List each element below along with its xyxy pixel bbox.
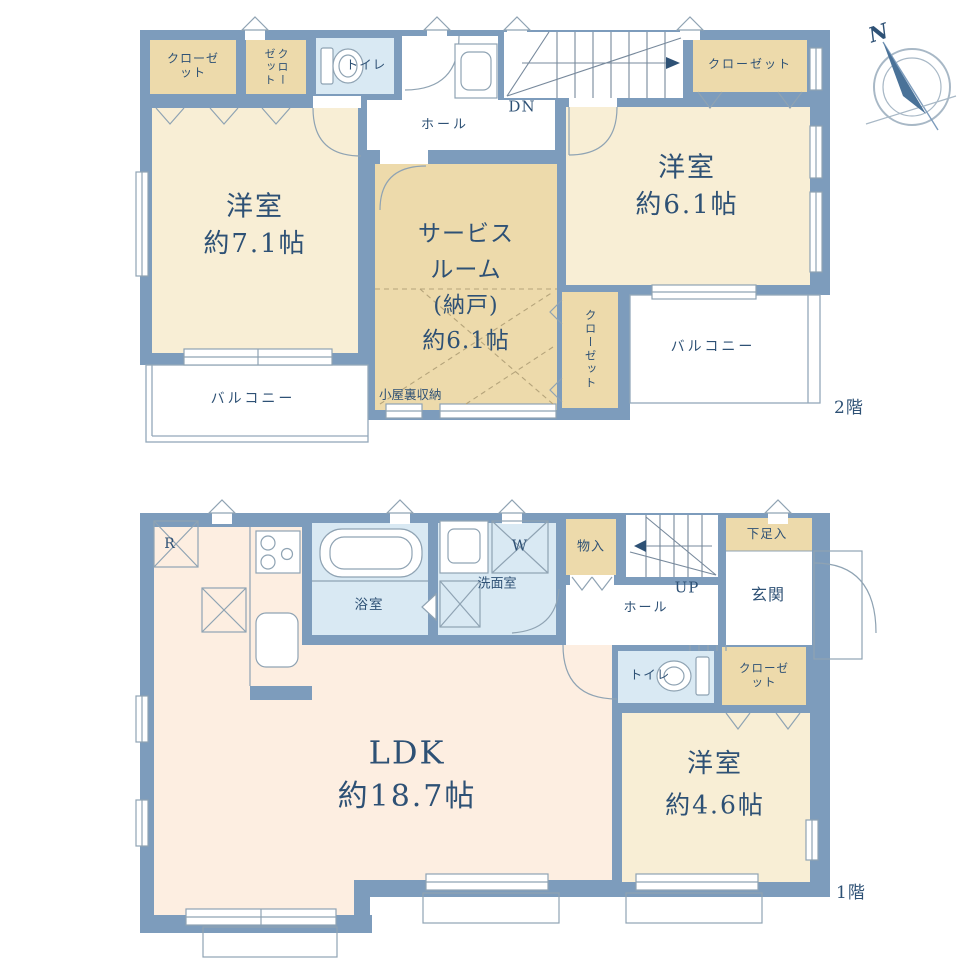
label-stairs-dn: DN [508, 98, 535, 115]
label-compass-north: N [866, 18, 893, 47]
label-bedroom46-size: 約4.6帖 [665, 792, 765, 821]
label-service-line1: サービス [418, 221, 514, 247]
label-attic-note: 小屋裏収納 [379, 388, 442, 402]
label-service-size: 約6.1帖 [422, 328, 510, 354]
label-ldk-name: LDK [369, 735, 446, 772]
labels-layer: クローゼット クローゼット トイレ ホール DN クローゼット 洋室 約7.1帖… [0, 0, 980, 980]
label-bedroom71-name: 洋室 [226, 191, 284, 222]
label-shoe-storage: 下足入 [747, 527, 788, 541]
label-service-line3: (納戸) [433, 293, 498, 318]
label-bedroom71-size: 約7.1帖 [203, 230, 306, 260]
label-toilet-2f: トイレ [346, 58, 387, 72]
floorplan-canvas: クローゼット クローゼット トイレ ホール DN クローゼット 洋室 約7.1帖… [0, 0, 980, 980]
label-floor1: 1階 [836, 884, 866, 904]
label-fridge: R [164, 536, 176, 552]
label-washroom: 洗面室 [477, 578, 516, 593]
label-floor2: 2階 [834, 399, 864, 419]
label-washer: W [512, 537, 528, 554]
label-closet-a: クローゼット [167, 52, 219, 81]
label-stairs-up: UP [675, 579, 700, 596]
label-closet-c: クローゼット [708, 58, 792, 72]
label-closet-b: クローゼット [263, 42, 289, 92]
label-toilet-1f: トイレ [630, 668, 671, 682]
label-entrance: 玄関 [751, 586, 785, 604]
label-service-line2: ルーム [430, 257, 501, 283]
label-balcony-left: バルコニー [211, 391, 296, 407]
label-balcony-right: バルコニー [671, 339, 756, 355]
label-bedroom61-size: 約6.1帖 [635, 191, 738, 221]
label-ldk-size: 約18.7帖 [338, 780, 477, 815]
label-hall-2f: ホール [421, 119, 469, 134]
label-closet-d: クローゼット [583, 293, 596, 405]
label-closet-1f: クローゼット [738, 662, 790, 690]
label-hall-1f: ホール [623, 602, 668, 617]
label-bath: 浴室 [355, 598, 384, 614]
label-storage: 物入 [577, 541, 605, 556]
label-bedroom61-name: 洋室 [658, 152, 716, 183]
label-bedroom46-name: 洋室 [687, 750, 743, 780]
